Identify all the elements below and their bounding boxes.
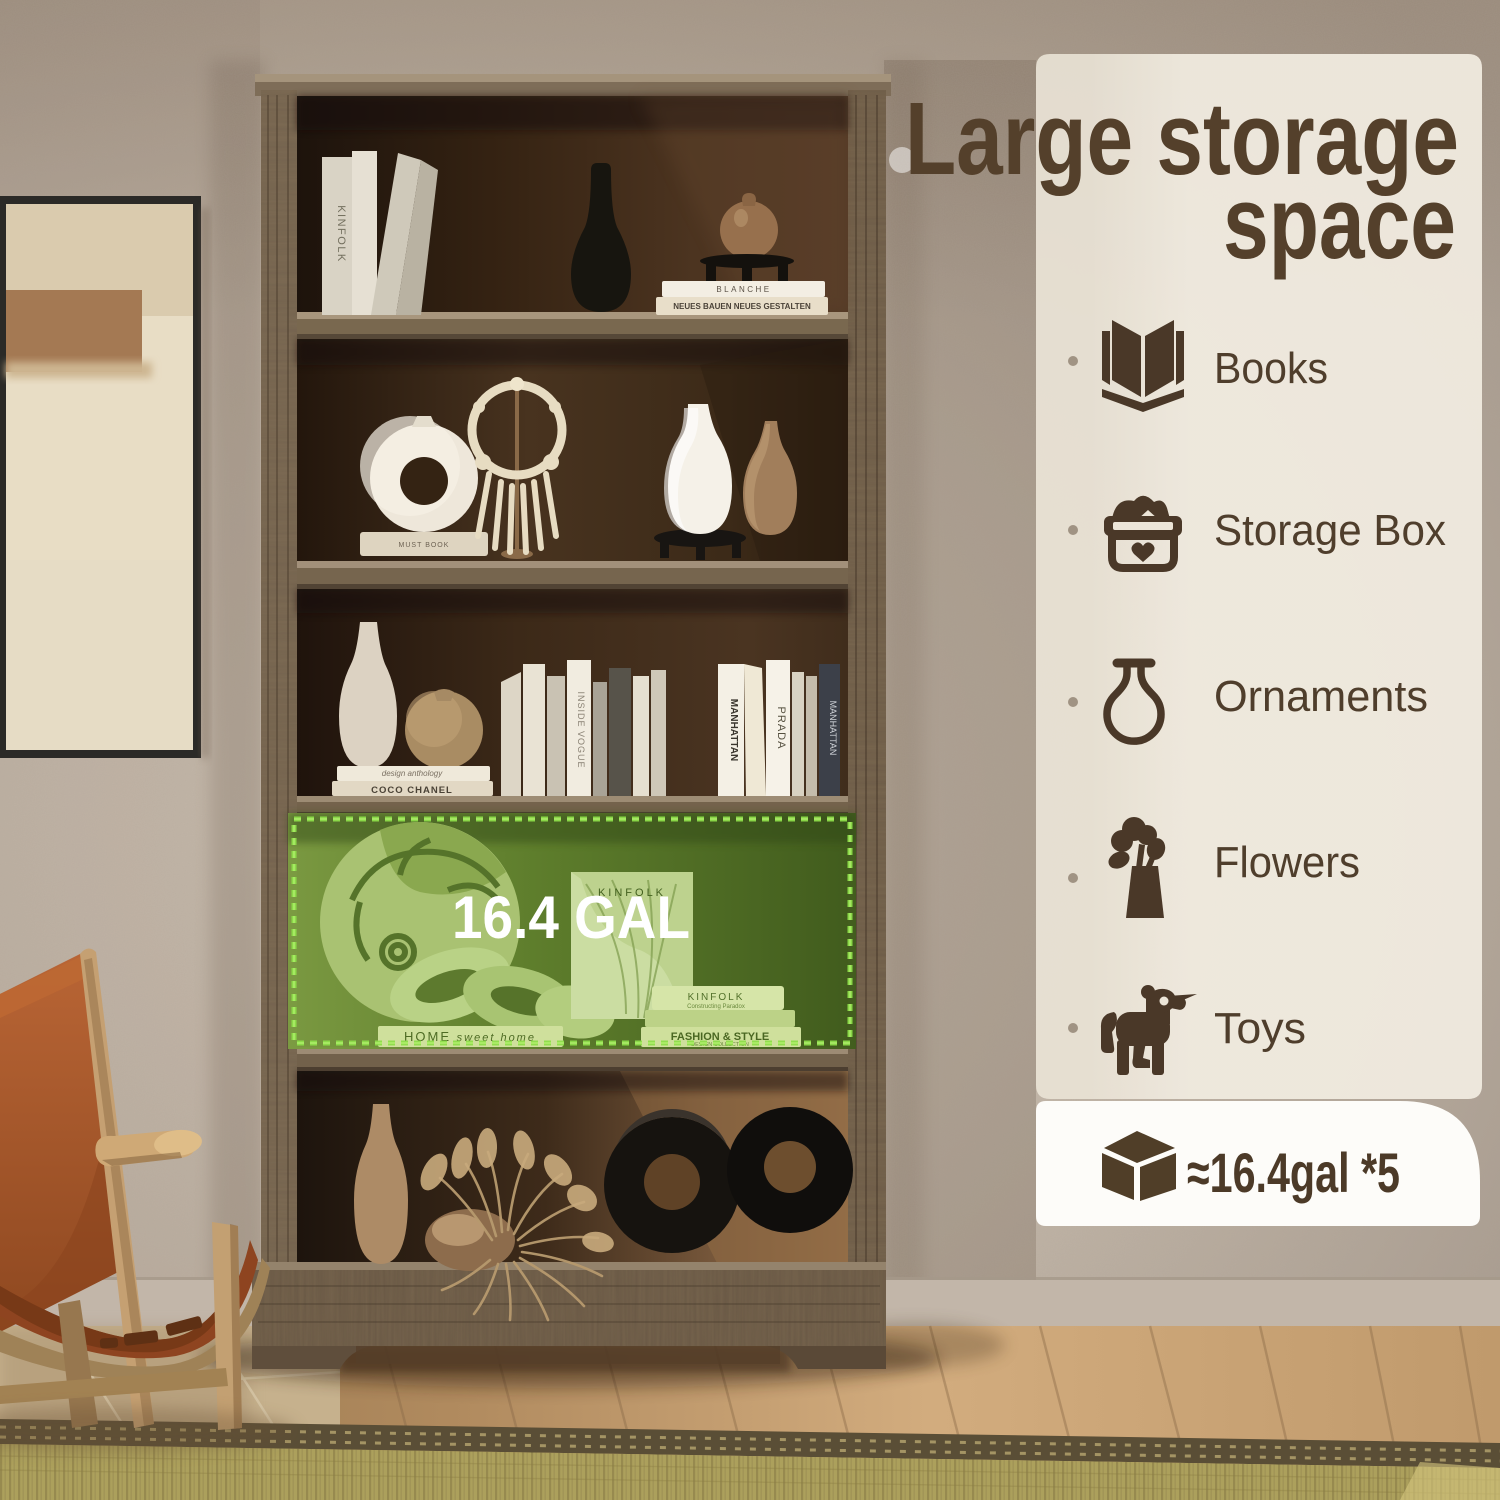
svg-text:COCO CHANEL: COCO CHANEL (371, 785, 453, 796)
svg-text:space: space (1223, 165, 1456, 280)
svg-text:MANHATTAN: MANHATTAN (728, 699, 739, 761)
svg-text:INSIDE VOGUE: INSIDE VOGUE (576, 691, 586, 768)
svg-text:Storage Box: Storage Box (1214, 506, 1446, 555)
svg-text:KINFOLK: KINFOLK (688, 992, 745, 1003)
svg-text:PRADA: PRADA (775, 707, 787, 750)
svg-text:NEUES BAUEN NEUES GESTALTEN: NEUES BAUEN NEUES GESTALTEN (673, 302, 811, 311)
svg-text:design anthology: design anthology (382, 769, 443, 778)
svg-text:MANHATTAN: MANHATTAN (828, 701, 838, 756)
svg-text:≈16.4gal *5: ≈16.4gal *5 (1187, 1141, 1400, 1204)
svg-text:Books: Books (1214, 344, 1328, 393)
svg-text:Toys: Toys (1214, 1004, 1306, 1053)
svg-text:BLANCHE: BLANCHE (716, 285, 771, 294)
svg-text:KINFOLK: KINFOLK (335, 205, 347, 263)
svg-text:MUST BOOK: MUST BOOK (399, 542, 450, 549)
svg-text:Flowers: Flowers (1214, 838, 1360, 887)
svg-text:16.4 GAL: 16.4 GAL (452, 884, 690, 951)
svg-text:Constructing Paradox: Constructing Paradox (687, 1004, 745, 1010)
svg-text:Ornaments: Ornaments (1214, 672, 1428, 721)
